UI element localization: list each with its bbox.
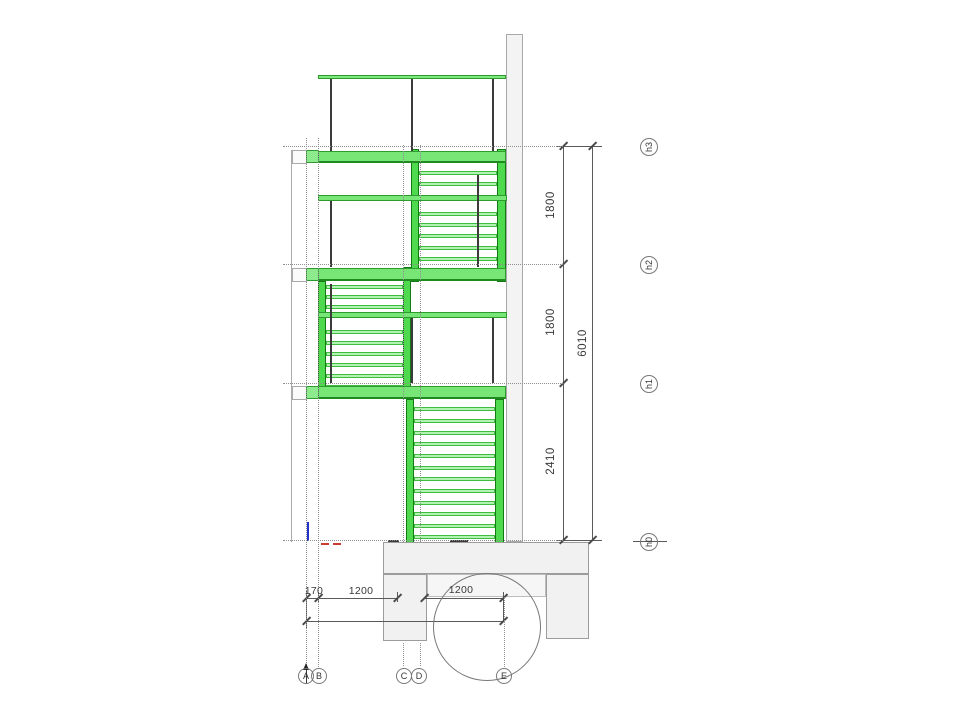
foundation-slab bbox=[383, 542, 589, 574]
level-marker-h2: h2 bbox=[640, 256, 658, 274]
stair-stringer bbox=[495, 399, 504, 543]
foundation-pier-right bbox=[546, 574, 589, 639]
stair-section-drawing[interactable]: h3h2h1h0ABCDE180018002410601017012001200 bbox=[0, 0, 960, 720]
tread bbox=[419, 171, 497, 175]
tread bbox=[414, 454, 495, 458]
dim-line-bottom-1 bbox=[306, 598, 397, 599]
level-line-h2 bbox=[283, 264, 563, 265]
handrail-post bbox=[330, 79, 332, 151]
reference-mark-blue bbox=[307, 522, 309, 541]
landing-bracket-h2 bbox=[292, 268, 307, 282]
level-marker-h3: h3 bbox=[640, 138, 658, 156]
landing-slab-h1 bbox=[318, 386, 506, 399]
tread bbox=[414, 524, 495, 528]
tread bbox=[414, 442, 495, 446]
handrail-post bbox=[411, 79, 413, 151]
stair-stringer bbox=[403, 267, 411, 399]
grid-marker-e: E bbox=[496, 668, 512, 684]
tread bbox=[414, 501, 495, 505]
grid-marker-d: D bbox=[411, 668, 427, 684]
grid-marker-c: C bbox=[396, 668, 412, 684]
ground-mark-red bbox=[333, 543, 341, 545]
tread bbox=[419, 257, 497, 261]
tread bbox=[419, 223, 497, 227]
handrail-post bbox=[330, 284, 332, 383]
dim-label-170: 170 bbox=[289, 585, 339, 597]
tread bbox=[414, 466, 495, 470]
tread bbox=[414, 535, 495, 539]
grid-line-c-lower bbox=[403, 643, 404, 666]
tread bbox=[326, 285, 403, 289]
tread bbox=[326, 363, 403, 367]
tread bbox=[326, 341, 403, 345]
tread bbox=[414, 489, 495, 493]
landing-slab-h2 bbox=[318, 268, 506, 281]
grid-line-d-lower bbox=[420, 643, 421, 666]
stair-stringer bbox=[411, 149, 419, 282]
tread bbox=[414, 512, 495, 516]
handrail-post bbox=[492, 318, 494, 383]
stair-stringer bbox=[497, 149, 506, 282]
level-line-h3 bbox=[283, 146, 563, 147]
dim-label-2410: 2410 bbox=[541, 435, 561, 487]
tread bbox=[414, 407, 495, 411]
level-line-h0 bbox=[283, 540, 563, 541]
tread bbox=[326, 295, 403, 299]
grid-line-d bbox=[420, 145, 421, 542]
ground-mark-red bbox=[321, 543, 329, 545]
landing-slab-h3 bbox=[318, 151, 506, 163]
tread bbox=[414, 431, 495, 435]
stair-stringer bbox=[318, 281, 326, 399]
grid-marker-b: B bbox=[311, 668, 327, 684]
handrail-post bbox=[411, 318, 413, 383]
tread bbox=[326, 374, 403, 378]
tread bbox=[326, 330, 403, 334]
level-marker-h0: h0 bbox=[640, 533, 658, 551]
dim-label-1800: 1800 bbox=[541, 296, 561, 348]
left-edge-line bbox=[291, 150, 292, 542]
tread bbox=[419, 212, 497, 216]
foundation-pier-left bbox=[383, 574, 427, 641]
dim-label-1800: 1800 bbox=[541, 179, 561, 231]
tread bbox=[419, 246, 497, 250]
tread bbox=[414, 419, 495, 423]
stair-stringer bbox=[406, 399, 414, 543]
dim-label-6010: 6010 bbox=[573, 317, 593, 369]
tread bbox=[326, 305, 403, 309]
dim-line-storey bbox=[563, 146, 564, 540]
dim-label-1200: 1200 bbox=[436, 584, 486, 596]
tread bbox=[326, 352, 403, 356]
tread bbox=[419, 234, 497, 238]
handrail-post bbox=[492, 79, 494, 151]
wall-section bbox=[506, 34, 523, 542]
tread bbox=[414, 477, 495, 481]
level-line-h1 bbox=[283, 383, 563, 384]
landing-bracket-h3 bbox=[292, 150, 307, 164]
handrail-post bbox=[477, 175, 479, 267]
handrail-post bbox=[330, 201, 332, 267]
landing-bracket-h1 bbox=[292, 386, 307, 400]
level-marker-h1: h1 bbox=[640, 375, 658, 393]
dim-label-1200: 1200 bbox=[336, 585, 386, 597]
tread bbox=[419, 182, 497, 186]
grid-line-c bbox=[403, 145, 404, 542]
